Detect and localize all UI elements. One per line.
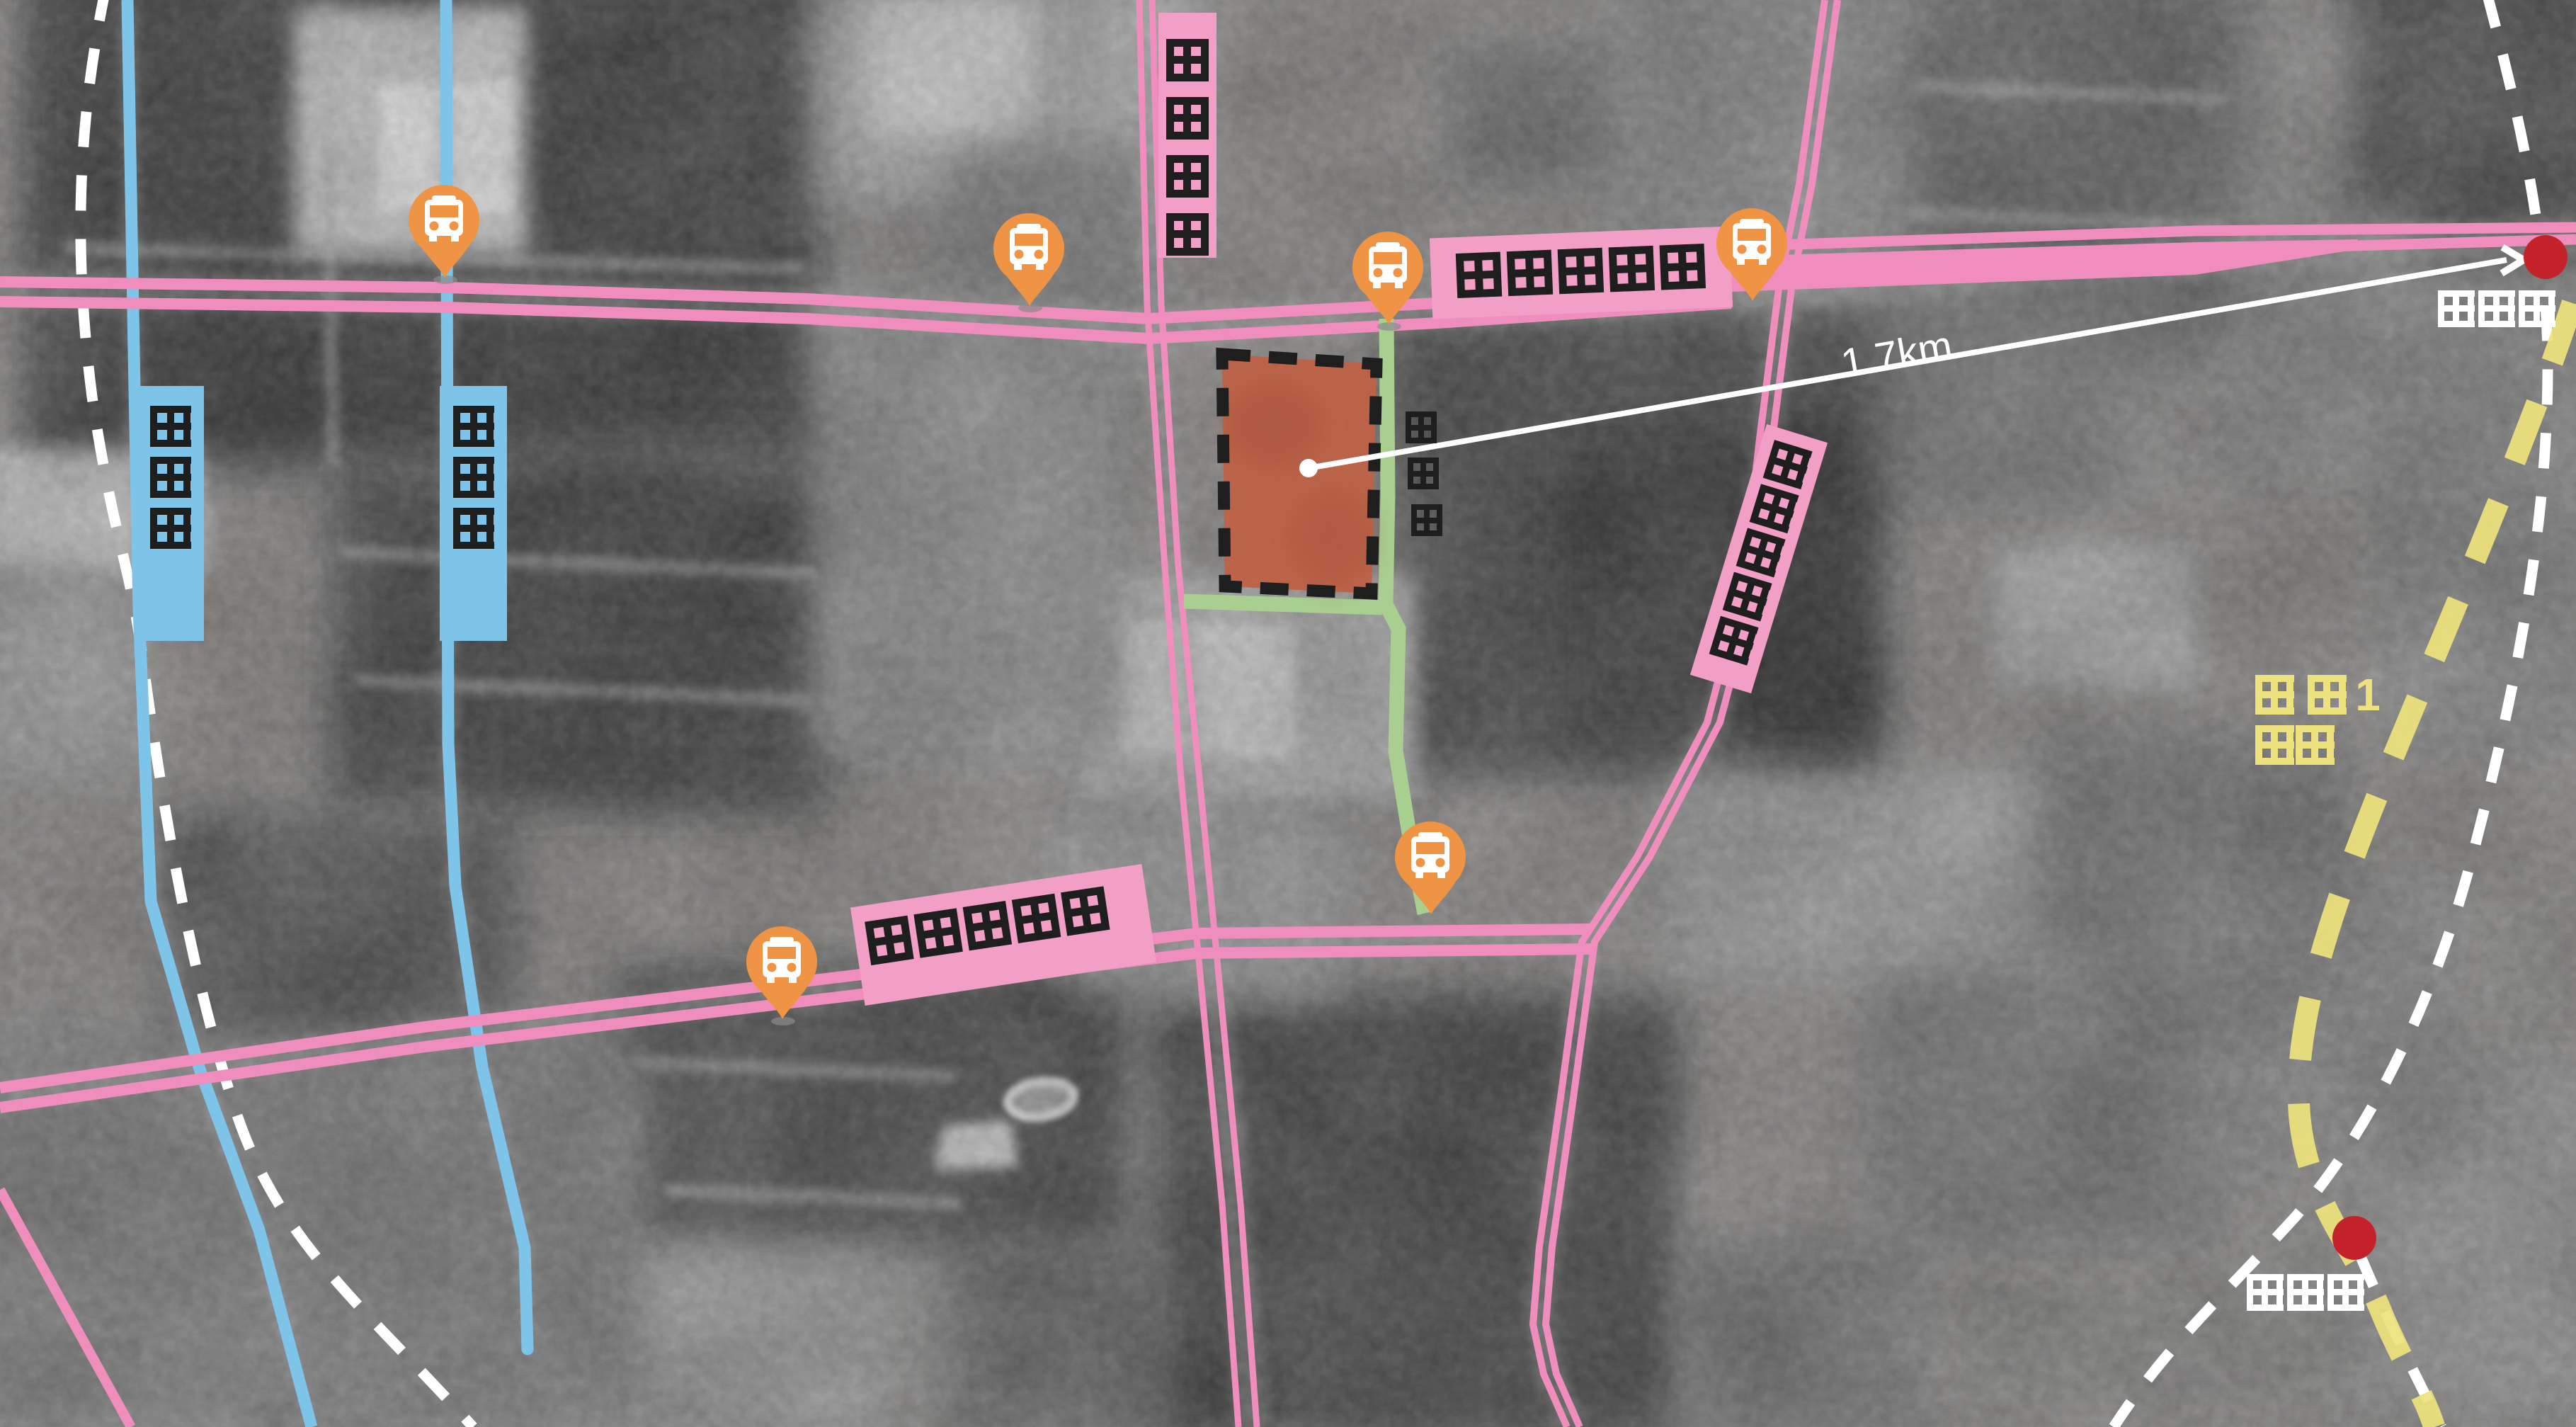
- svg-text:1: 1: [2355, 669, 2381, 720]
